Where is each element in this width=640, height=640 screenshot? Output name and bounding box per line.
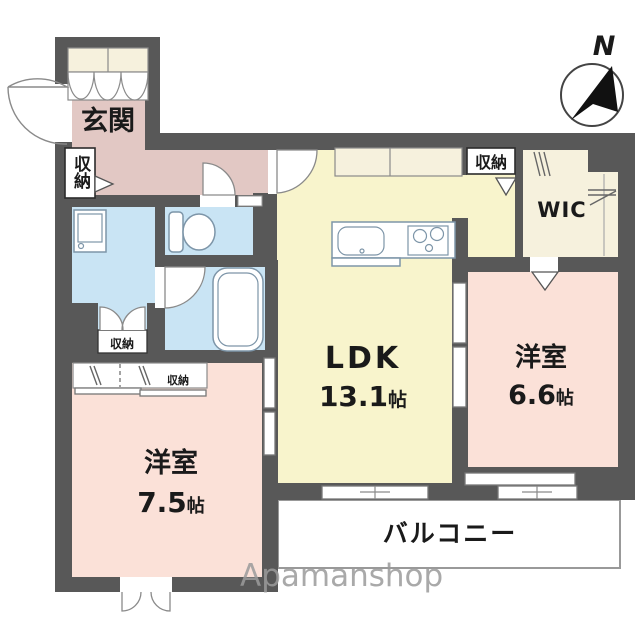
ldk-label: LDK <box>325 341 401 376</box>
wall-pillar <box>588 148 618 172</box>
floor-plan: N 玄関 収納 LDK 13.1帖 収納 WIC 洋室 6.6帖 洋室 7.5帖… <box>0 0 640 640</box>
bedroom-window-opening <box>120 577 172 592</box>
ldk-floor <box>277 150 453 485</box>
wall <box>147 303 165 355</box>
bedroom-east-area-unit: 帖 <box>556 387 574 409</box>
floor-plan-drawing: N 玄関 収納 LDK 13.1帖 収納 WIC 洋室 6.6帖 洋室 7.5帖… <box>0 0 640 640</box>
hallway-floor <box>72 146 268 198</box>
hall-closet-label: 収納 <box>70 155 91 190</box>
sliding-door-panel <box>264 358 275 408</box>
toilet-door-opening <box>238 196 262 206</box>
bedroom-south-area-unit: 帖 <box>187 495 205 517</box>
top-closet-label: 収納 <box>475 153 507 172</box>
washroom-closet-label: 収納 <box>110 336 134 351</box>
bathtub <box>213 268 263 351</box>
wall <box>155 255 265 267</box>
entrance-label: 玄関 <box>81 105 135 137</box>
bedroom-south-closet-label: 収納 <box>167 373 189 387</box>
ldk-floor-passage <box>452 174 468 220</box>
sliding-door-panel <box>453 347 466 407</box>
compass-north-label: N <box>593 31 616 62</box>
sliding-door-panel <box>264 412 275 455</box>
wall <box>55 350 278 363</box>
closet-sliding-track <box>75 388 141 394</box>
wall <box>618 133 635 500</box>
bedroom-east-window-sill <box>465 473 575 485</box>
window-door-swing <box>122 592 170 611</box>
wic-label: WIC <box>537 198 586 222</box>
washroom-door-opening <box>200 195 235 207</box>
bedroom-east-label: 洋室 <box>515 342 567 373</box>
toilet-tank <box>169 212 183 252</box>
wall <box>155 195 165 262</box>
ldk-area-unit: 帖 <box>388 388 407 411</box>
bath-door-opening <box>155 267 165 308</box>
shoe-cabinet-doors <box>68 72 148 100</box>
kitchen-counter-lip <box>332 258 400 266</box>
ldk-closet-strip <box>335 148 462 176</box>
bedroom-south-area-value: 7.5 <box>137 486 187 519</box>
balcony-label: バルコニー <box>383 519 518 548</box>
bedroom-east-area-value: 6.6 <box>508 380 556 411</box>
ldk-area-value: 13.1 <box>319 380 388 413</box>
bedroom-south-label: 洋室 <box>144 447 198 479</box>
watermark: Apamanshop <box>240 558 443 594</box>
hall-ldk-door-opening <box>268 150 277 194</box>
wic-door-opening <box>530 257 558 272</box>
sliding-door-panel <box>453 283 466 343</box>
closet-sliding-track <box>140 390 206 396</box>
wall <box>72 303 98 355</box>
wall <box>515 148 523 260</box>
wall <box>265 260 278 355</box>
toilet-bowl <box>183 214 215 250</box>
compass: N <box>561 31 623 126</box>
